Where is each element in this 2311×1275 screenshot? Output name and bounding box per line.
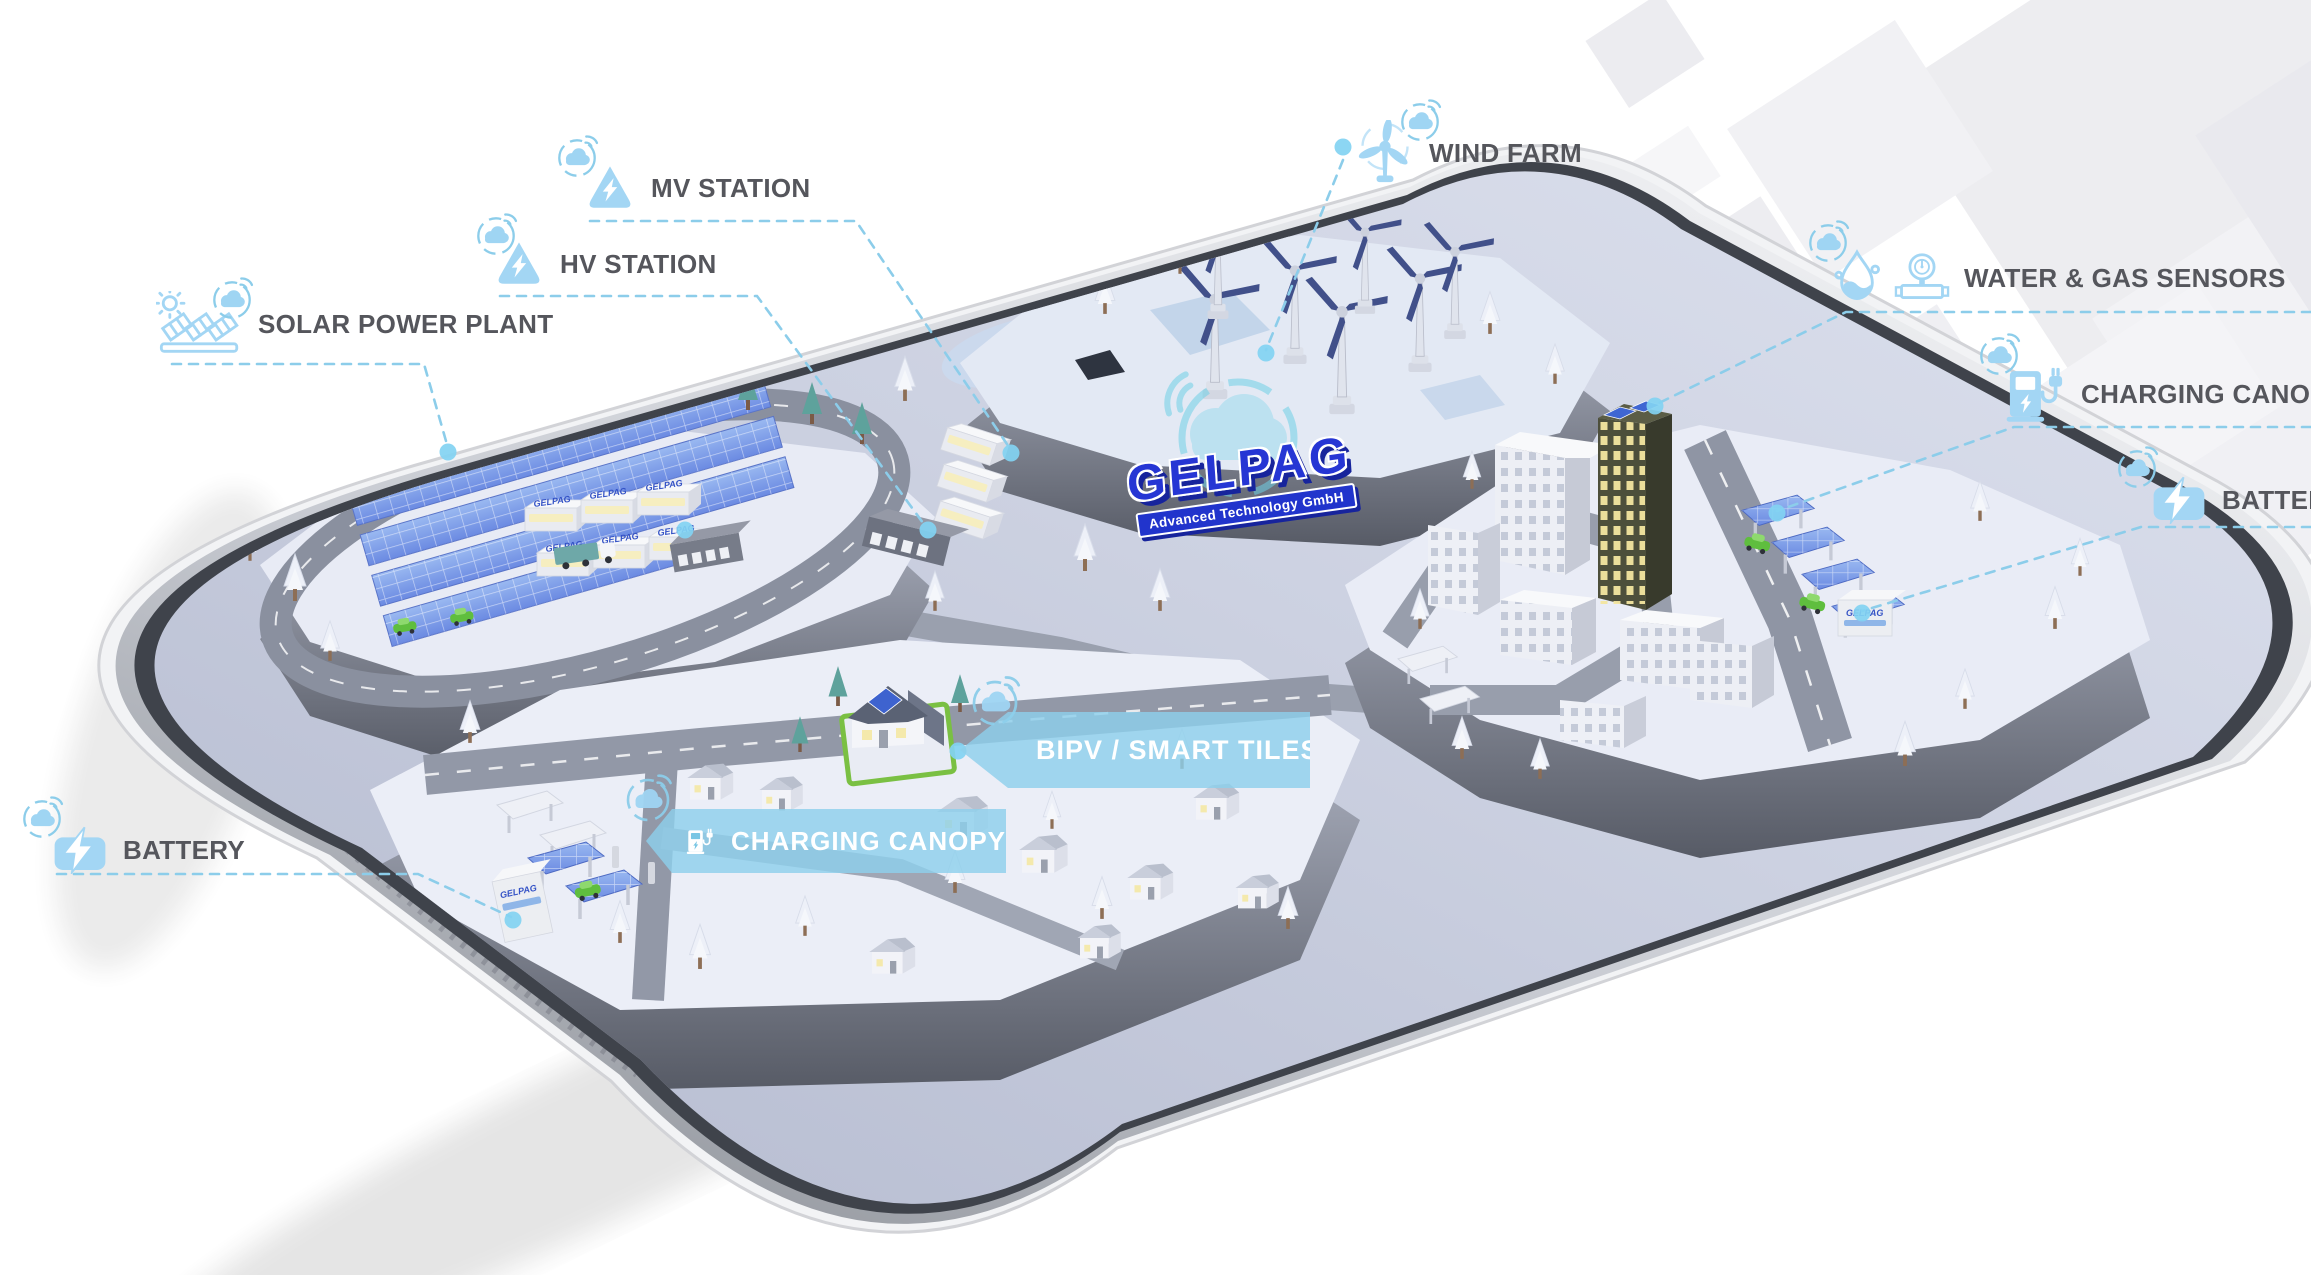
iot-cloud-icon (1976, 333, 2022, 379)
city-building (1428, 523, 1500, 615)
sensor-dot (920, 522, 937, 539)
sensor-dot (1769, 505, 1786, 522)
sensor-dot (1335, 139, 1352, 156)
callout-label: HV STATION (560, 249, 717, 280)
city-tower (1598, 401, 1672, 610)
iot-cloud-icon (2114, 446, 2160, 492)
scene-canvas: GELPAG GELPAG GELPAG GELPAG GELPAG GELPA… (0, 0, 2311, 1275)
callout-label: BATTERY (123, 835, 245, 866)
sensor-dot (1854, 605, 1871, 622)
callout-hv-station: HV STATION (492, 237, 717, 291)
sensor-dot (440, 444, 457, 461)
callout-label: SOLAR POWER PLANT (258, 309, 553, 340)
charging-canopy-banner: CHARGING CANOPY (646, 809, 1006, 873)
iot-cloud-icon (1397, 99, 1443, 145)
callout-mv-station: MV STATION (583, 161, 810, 215)
callout-label: MV STATION (651, 173, 810, 204)
callout-charging-canopy-city: CHARGING CANOPY (2005, 362, 2311, 426)
city-building (1500, 590, 1596, 665)
callout-label: CHARGING CANOPY (2081, 379, 2311, 410)
sensor-dot (1258, 345, 1275, 362)
gas-meter-icon (1894, 251, 1950, 305)
callout-label: WATER & GAS SENSORS (1964, 263, 2286, 294)
banner-label: CHARGING CANOPY (731, 826, 1006, 857)
sensor-dot (1647, 398, 1664, 415)
iot-cloud-icon (1805, 220, 1851, 266)
banner-label: BIPV / SMART TILES (1036, 735, 1320, 766)
callout-battery-residential: BATTERY (51, 826, 245, 874)
ev-charger-icon (686, 814, 715, 868)
sensor-dot (677, 522, 694, 539)
callout-wind-farm: WIND FARM (1355, 120, 1582, 186)
sensor-dot (1003, 445, 1020, 462)
callout-water-gas-sensors: WATER & GAS SENSORS (1834, 248, 2286, 308)
callout-label: WIND FARM (1429, 138, 1582, 169)
callout-label: BATTERY (2222, 485, 2311, 516)
gelpag-logo: GELPAG Advanced Technology GmbH (1128, 360, 1368, 570)
iot-cloud-icon (19, 796, 65, 842)
city-building (1690, 636, 1774, 708)
smart-city-infographic: GELPAG GELPAG GELPAG GELPAG GELPAG GELPA… (0, 0, 2311, 1275)
sensor-dot (505, 912, 522, 929)
bipv-banner: BIPV / SMART TILES (960, 712, 1310, 788)
iot-cloud-icon (554, 135, 600, 181)
iot-cloud-icon (473, 213, 519, 259)
iot-cloud-icon (209, 277, 255, 323)
leader-solar (172, 364, 448, 448)
callout-battery-city: BATTERY (2150, 476, 2311, 524)
